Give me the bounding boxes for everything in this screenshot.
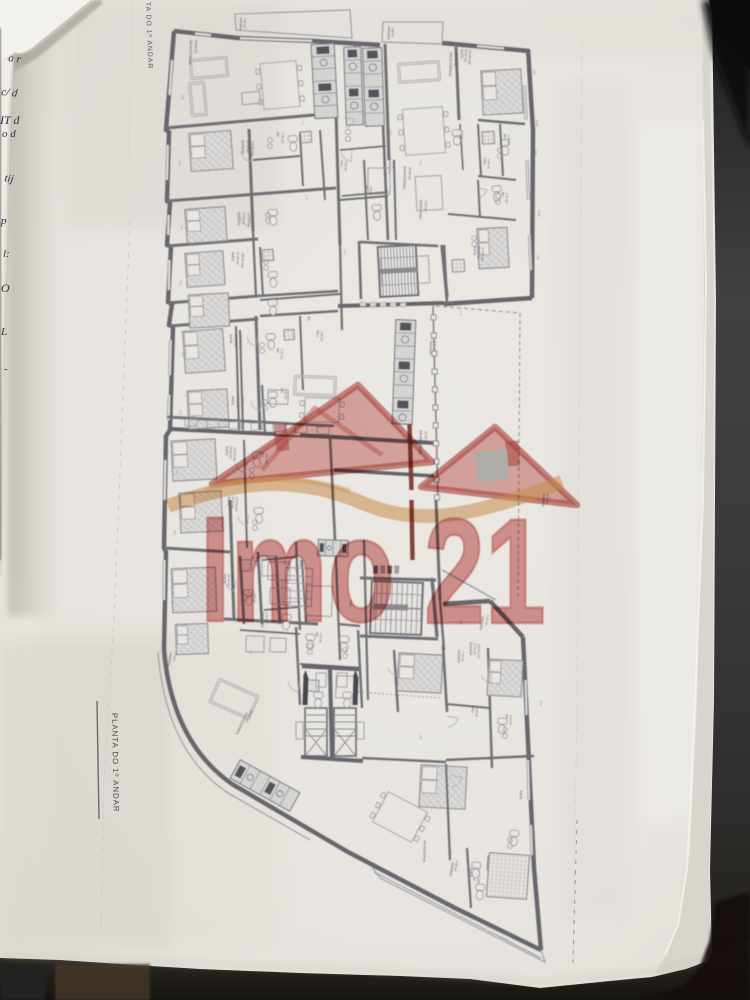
svg-text:10.25: 10.25 xyxy=(539,700,541,707)
svg-text:4.56 m2: 4.56 m2 xyxy=(391,27,395,37)
svg-text:3.60: 3.60 xyxy=(178,160,180,165)
svg-text:SUITE: SUITE xyxy=(231,396,235,406)
svg-text:HALL: HALL xyxy=(340,160,344,168)
svg-text:14.20: 14.20 xyxy=(537,210,541,217)
svg-text:Imo: Imo xyxy=(200,485,395,653)
svg-text:45.20 m2: 45.20 m2 xyxy=(424,431,428,444)
svg-text:18.45 m2: 18.45 m2 xyxy=(477,246,481,259)
svg-text:IT d: IT d xyxy=(0,113,20,127)
svg-text:4.05 m2: 4.05 m2 xyxy=(475,707,479,717)
svg-text:14.20: 14.20 xyxy=(459,310,461,317)
svg-text:o d: o d xyxy=(2,128,16,140)
svg-text:c/ d: c/ d xyxy=(1,86,19,100)
svg-text:HALL: HALL xyxy=(471,706,475,714)
svg-text:4.20: 4.20 xyxy=(181,352,183,357)
svg-text:SALA/COZINHA: SALA/COZINHA xyxy=(402,166,407,190)
svg-text:VARANDA: VARANDA xyxy=(239,17,243,31)
svg-text:5.20: 5.20 xyxy=(343,250,345,255)
svg-text:3.20: 3.20 xyxy=(534,150,537,155)
svg-text:(16.55 m2): (16.55 m2) xyxy=(467,50,472,65)
svg-text:4.05: 4.05 xyxy=(171,600,173,605)
svg-text:O: O xyxy=(1,281,10,295)
svg-text:1.75: 1.75 xyxy=(305,195,307,200)
svg-text:15.70 m2: 15.70 m2 xyxy=(246,140,250,153)
svg-text:6.80: 6.80 xyxy=(449,850,451,855)
svg-text:-: - xyxy=(4,363,8,375)
svg-text:HALL: HALL xyxy=(483,158,487,166)
svg-text:5.20 m2: 5.20 m2 xyxy=(320,331,324,342)
svg-text:3.55: 3.55 xyxy=(180,225,182,230)
svg-text:l:: l: xyxy=(3,248,10,260)
svg-text:PLANTA DO 1º ANDAR: PLANTA DO 1º ANDAR xyxy=(110,713,121,813)
svg-text:HALL: HALL xyxy=(316,330,320,338)
svg-text:ESCRITORIO: ESCRITORIO xyxy=(418,200,423,220)
svg-text:(17.80 m2): (17.80 m2) xyxy=(480,247,485,262)
svg-text:14.60 m2: 14.60 m2 xyxy=(229,446,233,459)
svg-text:52.00 m2: 52.00 m2 xyxy=(194,40,198,54)
svg-text:а r: а r xyxy=(8,52,23,66)
svg-text:2.05: 2.05 xyxy=(419,160,421,165)
svg-text:16.10 m2: 16.10 m2 xyxy=(234,334,238,347)
svg-text:SUITE: SUITE xyxy=(231,252,235,262)
svg-text:SUITE: SUITE xyxy=(473,246,477,256)
svg-text:21: 21 xyxy=(424,487,546,655)
svg-text:2.05 m2: 2.05 m2 xyxy=(392,159,396,169)
svg-text:35.45 m2: 35.45 m2 xyxy=(454,53,458,66)
svg-text:7.80 m2: 7.80 m2 xyxy=(243,18,247,28)
svg-text:1.60: 1.60 xyxy=(389,130,391,135)
svg-text:4.10: 4.10 xyxy=(179,410,181,415)
svg-text:16.90 m2: 16.90 m2 xyxy=(236,396,240,409)
svg-text:9.25 m2: 9.25 m2 xyxy=(344,161,348,172)
svg-text:4.60: 4.60 xyxy=(419,735,421,740)
svg-text:VARANDA: VARANDA xyxy=(387,26,391,40)
svg-text:2.10: 2.10 xyxy=(301,120,303,125)
svg-text:(20.06 m2): (20.06 m2) xyxy=(240,253,245,268)
svg-text:3.90: 3.90 xyxy=(173,530,175,535)
svg-text:4.25: 4.25 xyxy=(175,470,177,475)
svg-text:18.05 m2: 18.05 m2 xyxy=(464,49,468,62)
svg-text:SUITE: SUITE xyxy=(519,790,523,800)
svg-text:QUARTO: QUARTO xyxy=(237,212,241,226)
svg-text:5.05 m2: 5.05 m2 xyxy=(281,133,285,144)
svg-text:SALA/COZINHA: SALA/COZINHA xyxy=(422,840,427,862)
svg-text:1.60 m2: 1.60 m2 xyxy=(487,159,491,169)
svg-text:43.60 m2: 43.60 m2 xyxy=(408,167,412,180)
svg-text:4.65 m2: 4.65 m2 xyxy=(369,186,373,196)
svg-text:1.75 m2: 1.75 m2 xyxy=(280,349,284,360)
svg-text:21.20 m2: 21.20 m2 xyxy=(236,252,240,265)
svg-text:3.50: 3.50 xyxy=(179,280,181,285)
svg-text:p: p xyxy=(0,215,7,227)
svg-text:7.10: 7.10 xyxy=(536,255,539,260)
svg-text:SUITE: SUITE xyxy=(225,446,229,456)
svg-text:4.10 m2: 4.10 m2 xyxy=(509,715,513,726)
svg-text:SUITE: SUITE xyxy=(229,334,233,344)
svg-text:5.60: 5.60 xyxy=(532,70,535,75)
svg-text:3.75 m2: 3.75 m2 xyxy=(505,193,509,204)
svg-text:5.05: 5.05 xyxy=(181,95,183,100)
svg-text:25.60: 25.60 xyxy=(535,120,539,127)
svg-text:(14.00 m2): (14.00 m2) xyxy=(232,447,237,462)
svg-text:SUITE: SUITE xyxy=(460,49,464,59)
svg-text:WC: WC xyxy=(307,316,311,321)
svg-text:L: L xyxy=(0,326,7,338)
svg-text:3.45 m2: 3.45 m2 xyxy=(507,135,511,146)
